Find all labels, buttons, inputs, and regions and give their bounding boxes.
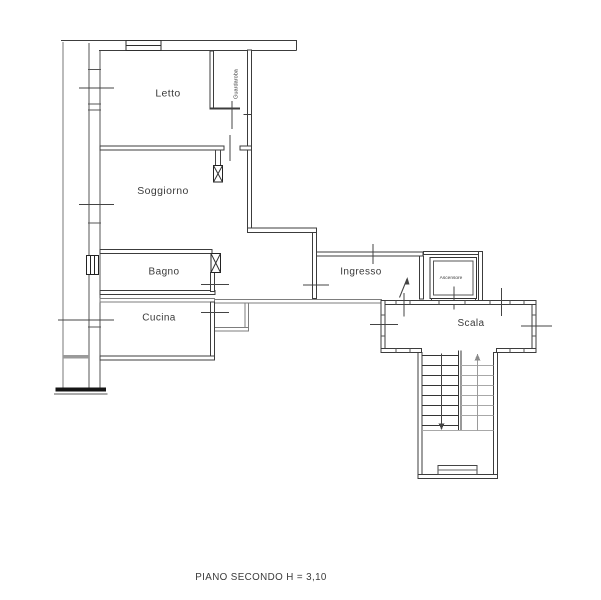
staircase	[418, 351, 498, 479]
scala-room-label: Scala	[457, 318, 484, 329]
ascensore-room-label: Ascensore	[440, 275, 463, 281]
floor-plan-canvas: Letto Soggiorno Bagno Cucina Ingresso Sc…	[0, 0, 601, 600]
window-top-letto	[126, 41, 161, 51]
flue-box-bagno	[211, 254, 221, 273]
arrow-down-icon	[439, 424, 445, 431]
letto-room-label: Letto	[155, 88, 180, 100]
guardaroba-room-label: Guardaroba	[234, 68, 240, 99]
arrow-up-icon	[475, 354, 481, 361]
stair-flight-down	[422, 354, 459, 431]
ingresso-room-label: Ingresso	[340, 267, 382, 278]
flue-box-soggiorno	[214, 150, 223, 182]
cucina-room-label: Cucina	[142, 313, 176, 324]
walls-cucina	[100, 299, 229, 361]
bagno-room-label: Bagno	[149, 267, 180, 278]
window-stair-landing	[438, 466, 477, 475]
floor-plan-page: Letto Soggiorno Bagno Cucina Ingresso Sc…	[0, 0, 601, 600]
walls-corridor-step	[215, 228, 382, 331]
floor-caption: PIANO SECONDO H = 3,10	[195, 572, 327, 583]
soggiorno-room-label: Soggiorno	[137, 185, 188, 197]
walls-guardaroba	[210, 51, 252, 129]
window-bagno	[87, 256, 99, 275]
walls-letto-soggiorno	[100, 50, 252, 229]
